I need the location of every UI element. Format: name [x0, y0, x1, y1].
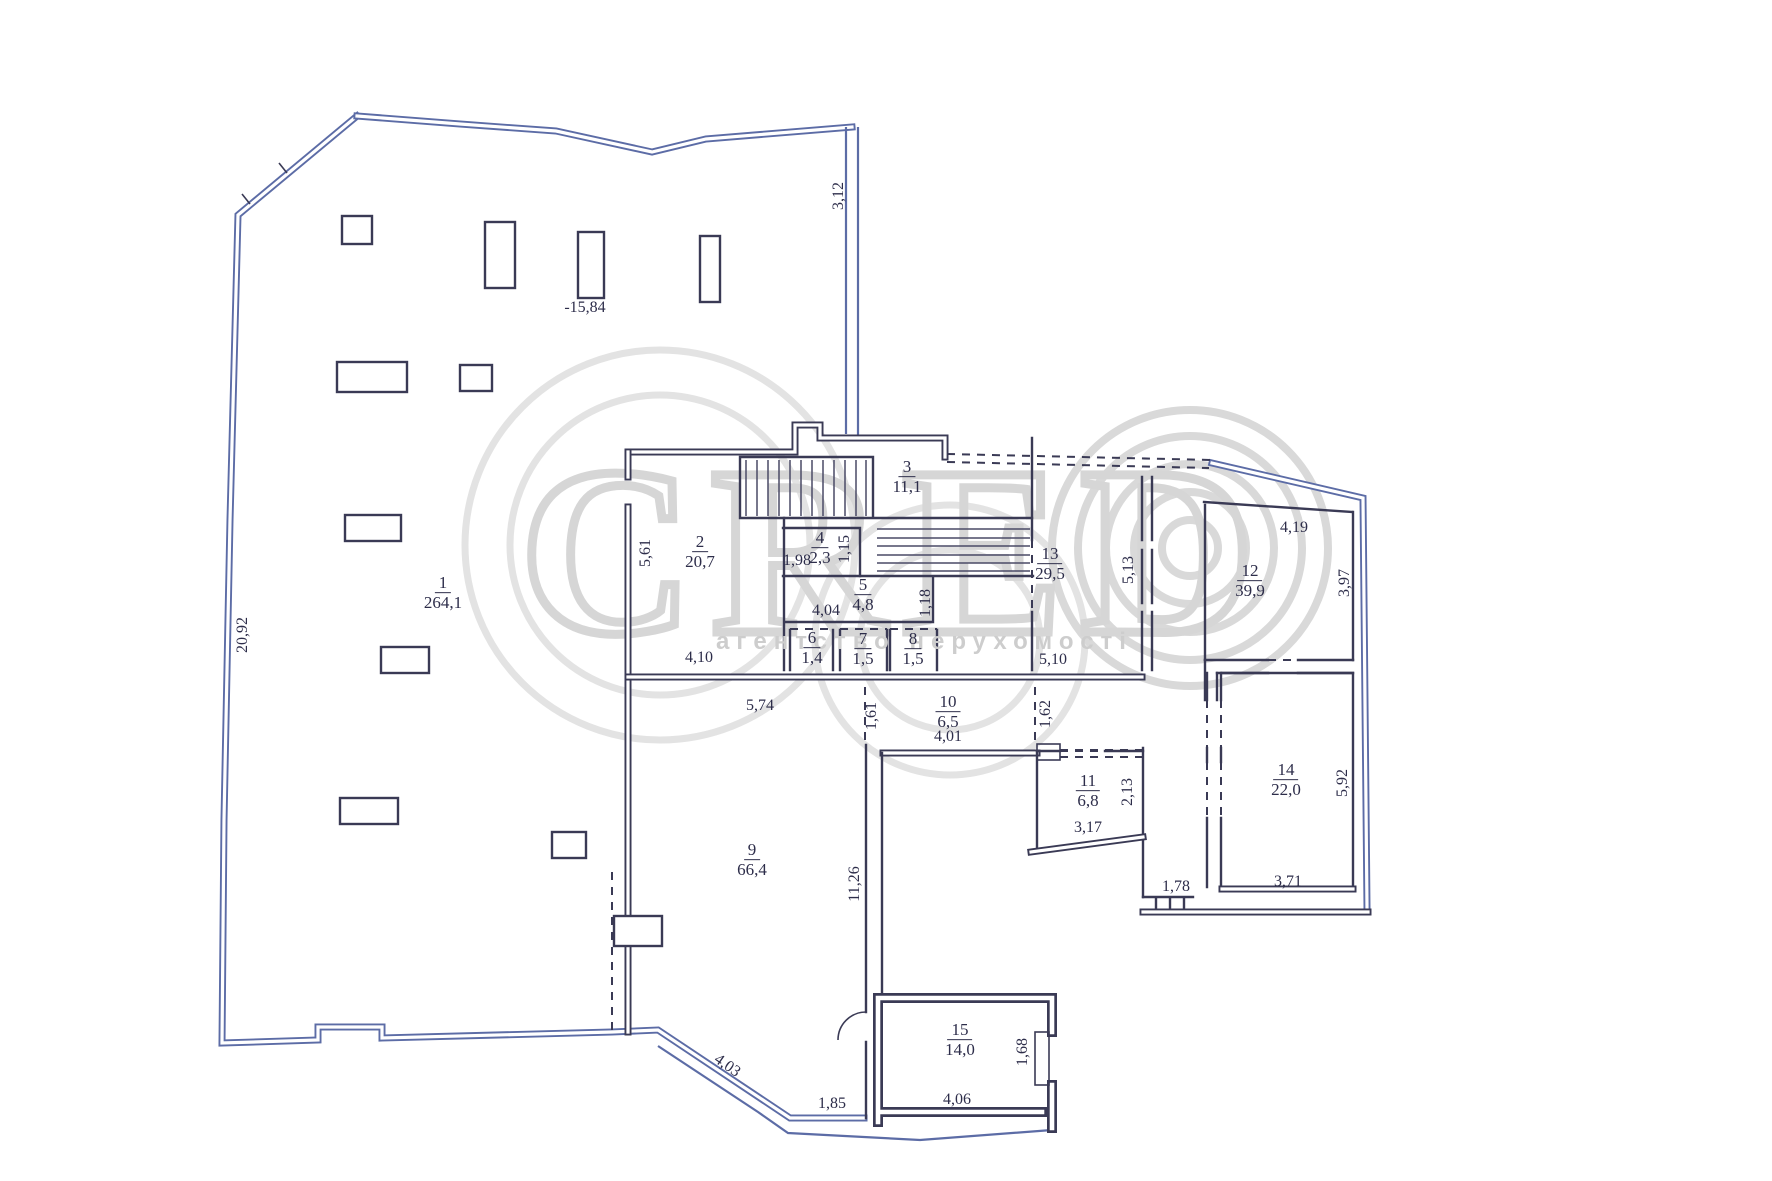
- dimension-label: 3,97: [1336, 569, 1354, 597]
- room-area: 22,0: [1271, 780, 1301, 799]
- room-number: 15: [948, 1021, 973, 1040]
- room-number: 9: [744, 841, 761, 860]
- dimension-label: 1,78: [1162, 878, 1190, 896]
- room-number: 2: [692, 533, 709, 552]
- room-area: 6,8: [1077, 791, 1098, 810]
- room-label: 61,4: [801, 629, 822, 667]
- dimension-label: 1,15: [836, 535, 854, 563]
- room-label: 220,7: [685, 533, 715, 571]
- dimension-label: 5,13: [1120, 556, 1138, 584]
- room-label: 1514,0: [945, 1021, 975, 1059]
- room-number: 13: [1038, 545, 1063, 564]
- dimension-label: 1,61: [863, 702, 881, 730]
- room-area: 66,4: [737, 860, 767, 879]
- room-area: 39,9: [1235, 581, 1265, 600]
- room-area: 1,5: [902, 649, 923, 668]
- dimension-label: 5,92: [1334, 769, 1352, 797]
- room-number: 4: [812, 529, 829, 548]
- dimension-label: 20,92: [234, 617, 252, 653]
- floor-plan-page: CRED: [0, 0, 1772, 1181]
- room-label: 54,8: [852, 576, 873, 614]
- room-area: 4,8: [852, 595, 873, 614]
- room-label: 81,5: [902, 630, 923, 668]
- dimension-label: 3,17: [1074, 819, 1102, 837]
- room-number: 11: [1076, 772, 1100, 791]
- dimension-label: 5,10: [1039, 651, 1067, 669]
- room-label: 106,5: [936, 693, 961, 731]
- room-label: 116,8: [1076, 772, 1100, 810]
- dimension-label: 4,01: [934, 728, 962, 746]
- room-area: 264,1: [424, 593, 462, 612]
- dimension-label: 1,98: [783, 552, 811, 570]
- dimension-label: 4,06: [943, 1091, 971, 1109]
- room-area: 11,1: [892, 477, 921, 496]
- dimension-label: 5,61: [637, 539, 655, 567]
- dimension-label: 4,04: [812, 602, 840, 620]
- room-number: 10: [936, 693, 961, 712]
- dimension-label: 3,12: [830, 182, 848, 210]
- dimension-label: 1,85: [818, 1095, 846, 1113]
- dimension-label: 1,68: [1014, 1038, 1032, 1066]
- dimension-label: 4,19: [1280, 519, 1308, 537]
- dimension-label: 3,71: [1274, 873, 1302, 891]
- room-label: 71,5: [852, 630, 873, 668]
- room-area: 1,4: [801, 648, 822, 667]
- room-number: 3: [899, 458, 916, 477]
- room-label: 966,4: [737, 841, 767, 879]
- room-area: 20,7: [685, 552, 715, 571]
- dimension-label: -15,84: [564, 299, 605, 317]
- dimension-label: 1,62: [1037, 700, 1055, 728]
- dimension-label: 5,74: [746, 697, 774, 715]
- room-number: 12: [1238, 562, 1263, 581]
- dimension-label: 4,03: [710, 1051, 743, 1082]
- room-number: 1: [435, 574, 452, 593]
- dimension-label: 11,26: [846, 866, 864, 901]
- dimension-label: 1,18: [917, 589, 935, 617]
- room-area: 29,5: [1035, 564, 1065, 583]
- room-number: 8: [905, 630, 922, 649]
- room-label: 1422,0: [1271, 761, 1301, 799]
- room-area: 1,5: [852, 649, 873, 668]
- labels-layer: 1264,1220,7311,142,354,861,471,581,5966,…: [0, 0, 1772, 1181]
- room-label: 1239,9: [1235, 562, 1265, 600]
- dimension-label: 4,10: [685, 649, 713, 667]
- room-number: 14: [1274, 761, 1299, 780]
- room-area: 2,3: [809, 548, 830, 567]
- dimension-label: 2,13: [1119, 778, 1137, 806]
- room-area: 14,0: [945, 1040, 975, 1059]
- room-label: 311,1: [892, 458, 921, 496]
- room-label: 1264,1: [424, 574, 462, 612]
- room-number: 7: [855, 630, 872, 649]
- room-number: 6: [804, 629, 821, 648]
- room-label: 1329,5: [1035, 545, 1065, 583]
- room-number: 5: [855, 576, 872, 595]
- room-label: 42,3: [809, 529, 830, 567]
